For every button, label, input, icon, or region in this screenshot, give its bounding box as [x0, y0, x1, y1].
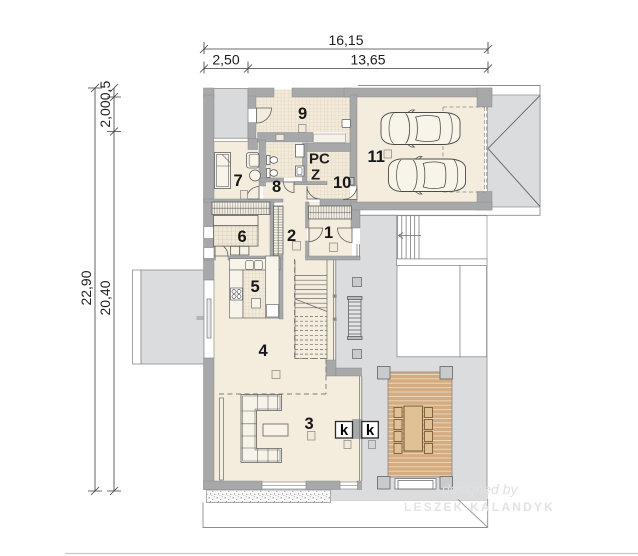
svg-text:6: 6 — [238, 228, 247, 246]
svg-text:8: 8 — [272, 178, 281, 196]
svg-text:11: 11 — [368, 148, 385, 166]
svg-text:2: 2 — [287, 227, 296, 245]
svg-text:k: k — [366, 422, 375, 439]
svg-text:2,50: 2,50 — [212, 52, 239, 68]
svg-text:9: 9 — [298, 105, 307, 123]
svg-text:5: 5 — [251, 278, 260, 296]
svg-text:k: k — [340, 422, 349, 439]
svg-text:LESZEK KALANDYK: LESZEK KALANDYK — [404, 500, 555, 514]
svg-text:0,5: 0,5 — [97, 81, 113, 101]
svg-text:20,40: 20,40 — [97, 280, 113, 315]
svg-text:22,90: 22,90 — [78, 270, 94, 305]
svg-text:10: 10 — [333, 174, 351, 192]
svg-text:13,65: 13,65 — [350, 52, 385, 68]
svg-text:1: 1 — [324, 224, 333, 242]
svg-text:designed by: designed by — [442, 481, 519, 497]
svg-text:Z: Z — [311, 167, 320, 184]
svg-text:7: 7 — [234, 172, 243, 190]
svg-text:3: 3 — [305, 415, 314, 433]
svg-text:PC: PC — [309, 151, 330, 168]
svg-text:2,00: 2,00 — [97, 100, 113, 127]
svg-text:16,15: 16,15 — [328, 32, 363, 48]
svg-text:4: 4 — [259, 342, 269, 360]
